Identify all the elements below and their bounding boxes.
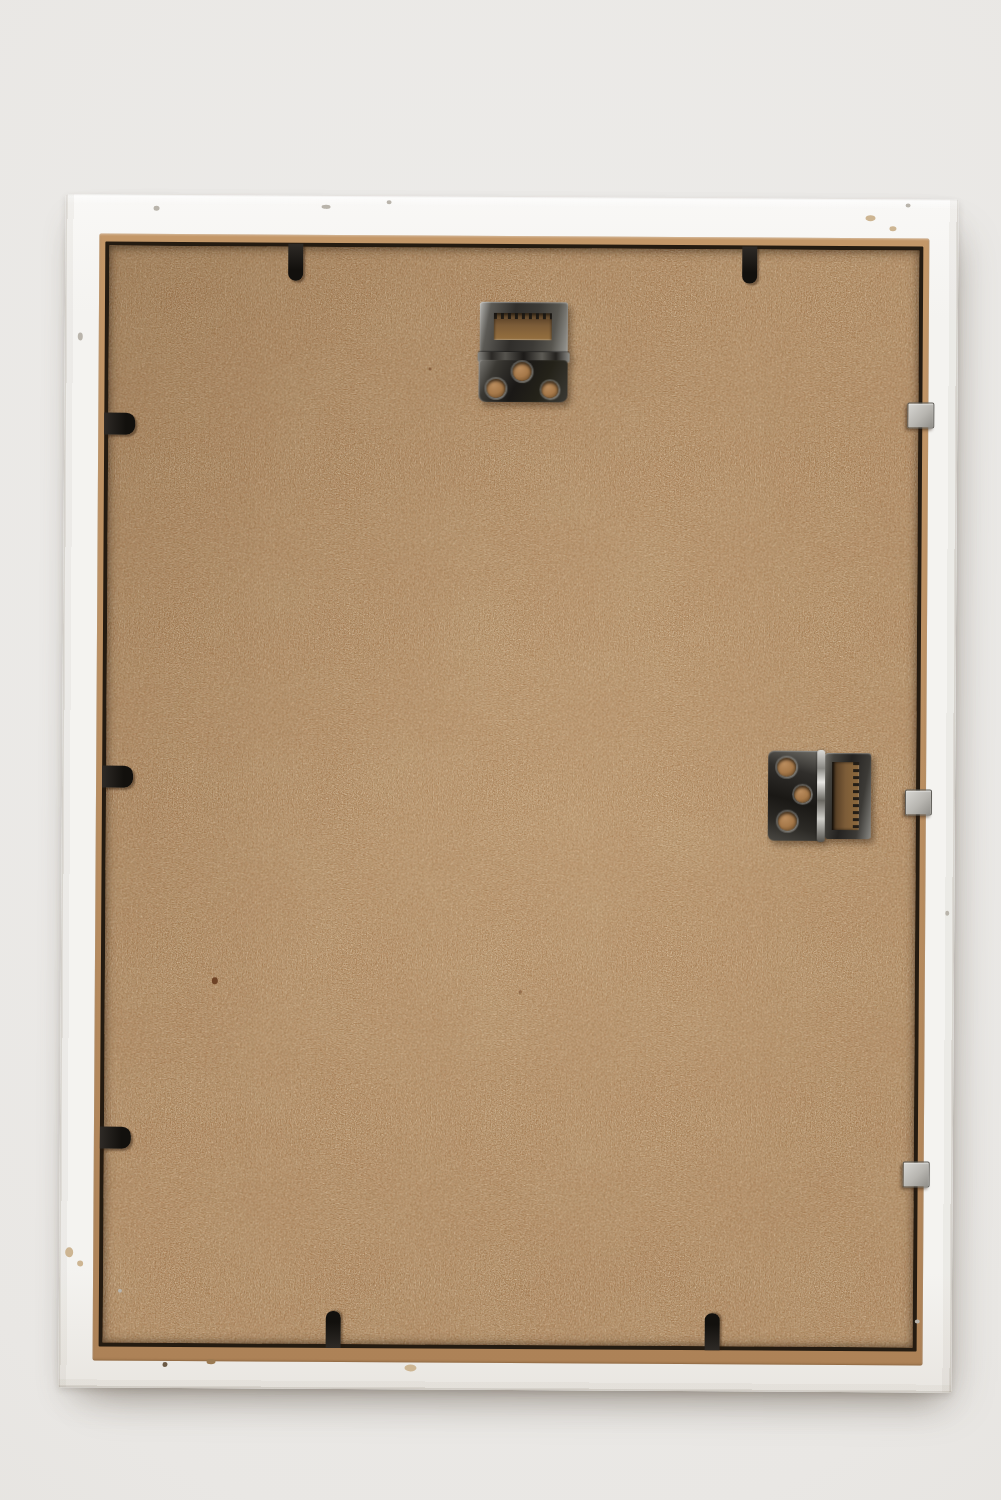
paint-chip [65,1247,73,1257]
hanger-screw-plate [768,751,821,841]
hanger-slot-cutout [494,313,552,340]
retainer-clip-left-upper [104,413,135,435]
hanger-screw-plate [478,360,567,403]
paint-chip [866,215,876,221]
screw-hole [778,812,797,831]
screw-hole [513,362,532,381]
retainer-clip-left-middle [102,766,133,788]
paint-chip [77,1260,83,1266]
retainer-clip-bottom-left [326,1311,341,1348]
paint-chip [207,1359,216,1364]
paint-chip [945,911,949,916]
screw-hole [794,786,811,803]
retainer-clip-bottom-right [705,1313,720,1350]
paint-chip [78,332,83,340]
hanger-slot-flap [480,302,568,355]
paint-chip [906,203,911,207]
photo-background [0,0,1001,1500]
hanger-slot-cutout [832,762,859,830]
metal-tab-right-lower [903,1161,930,1187]
paint-chip [162,1362,167,1367]
hanger-slot-flap [825,753,872,839]
board-speck [212,977,218,984]
paint-chip [915,1319,920,1323]
serrated-edge [853,762,859,830]
board-speck [519,990,522,994]
paint-chip [322,205,331,209]
metal-tab-right-upper [907,402,934,428]
metal-tab-right-middle [905,789,932,815]
picture-frame-back [58,194,958,1392]
hinge-hanger-right [768,750,872,843]
retainer-clip-top-left [288,244,303,281]
paint-chip [118,1289,122,1293]
hinge-hanger-top [477,302,570,403]
paint-chip [889,226,896,231]
board-speck [429,368,432,371]
screw-hole [486,379,505,398]
paint-chip [154,206,160,211]
retainer-clip-left-lower [100,1127,131,1149]
screw-hole [777,758,796,777]
paint-chip [387,200,392,204]
serrated-edge [494,313,552,319]
paint-chip [404,1364,416,1371]
screw-hole [541,381,558,398]
retainer-clip-top-right [742,246,757,283]
